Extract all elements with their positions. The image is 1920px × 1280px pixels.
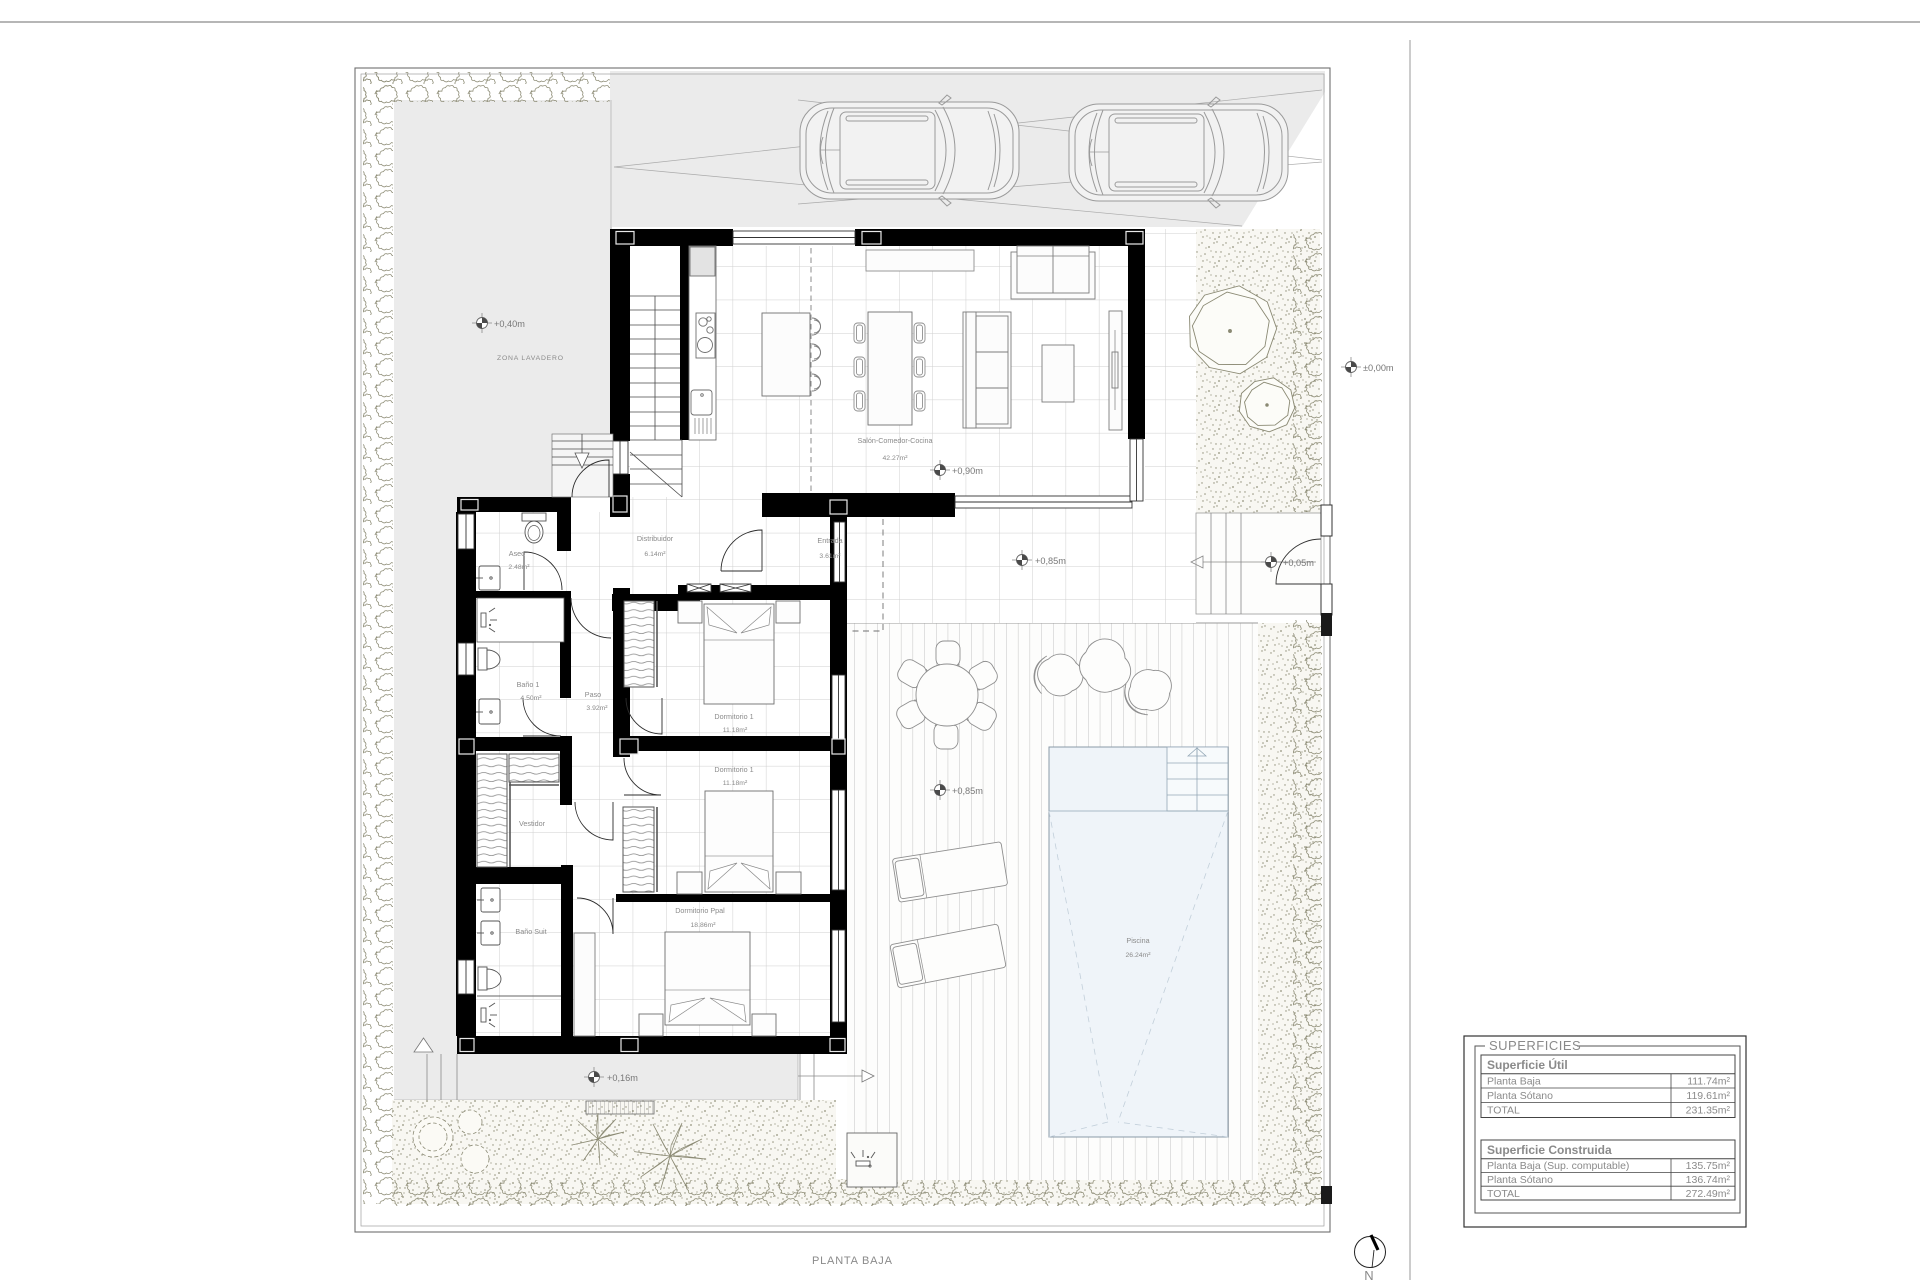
svg-text:231.35m²: 231.35m² [1686,1105,1731,1117]
svg-text:11.18m²: 11.18m² [723,727,748,734]
svg-text:Distribuidor: Distribuidor [637,534,674,543]
svg-text:Superficie Construida: Superficie Construida [1487,1143,1612,1157]
svg-text:111.74m²: 111.74m² [1687,1076,1730,1088]
svg-text:Dormitorio Ppal: Dormitorio Ppal [675,906,725,915]
svg-text:272.49m²: 272.49m² [1686,1188,1731,1200]
svg-text:11.18m²: 11.18m² [723,780,748,787]
svg-text:+0,40m: +0,40m [494,319,525,329]
svg-text:N: N [1364,1268,1373,1280]
svg-text:119.61m²: 119.61m² [1686,1090,1730,1102]
svg-text:26.24m²: 26.24m² [1126,952,1152,959]
svg-text:Superficie Útil: Superficie Útil [1487,1057,1568,1072]
svg-text:Paso: Paso [585,690,601,699]
svg-text:+0,85m: +0,85m [1035,556,1066,566]
svg-text:+0,90m: +0,90m [952,466,983,476]
svg-text:+0,05m: +0,05m [1283,558,1314,568]
svg-text:18.86m²: 18.86m² [691,922,717,929]
svg-text:ZONA LAVADERO: ZONA LAVADERO [497,355,564,362]
svg-text:Dormitorio 1: Dormitorio 1 [714,765,753,774]
svg-text:Vestidor: Vestidor [519,819,546,828]
svg-text:Entrada: Entrada [817,536,842,545]
svg-text:Planta Baja: Planta Baja [1487,1076,1541,1088]
svg-text:2.48m²: 2.48m² [508,564,530,571]
svg-text:Planta Sótano: Planta Sótano [1487,1090,1553,1102]
svg-text:Salón-Comedor-Cocina: Salón-Comedor-Cocina [857,436,932,445]
svg-text:Aseo: Aseo [509,549,525,558]
svg-text:Baño Suit: Baño Suit [515,927,546,936]
svg-text:Baño 1: Baño 1 [517,680,540,689]
svg-text:3.61m²: 3.61m² [819,553,841,560]
svg-text:136.74m²: 136.74m² [1686,1174,1731,1186]
svg-text:6.14m²: 6.14m² [644,551,666,558]
svg-text:Dormitorio 1: Dormitorio 1 [714,712,753,721]
svg-text:±0,00m: ±0,00m [1363,363,1394,373]
svg-text:Piscina: Piscina [1126,936,1149,945]
svg-text:SUPERFICIES: SUPERFICIES [1489,1038,1581,1053]
svg-text:135.75m²: 135.75m² [1686,1160,1731,1172]
svg-text:Planta Baja (Sup. computable): Planta Baja (Sup. computable) [1487,1160,1629,1172]
svg-text:Planta Sótano: Planta Sótano [1487,1174,1553,1186]
svg-text:+0,85m: +0,85m [952,786,983,796]
svg-text:4.50m²: 4.50m² [520,695,542,702]
svg-text:PLANTA BAJA: PLANTA BAJA [812,1255,893,1267]
svg-text:42.27m²: 42.27m² [883,455,909,462]
svg-text:TOTAL: TOTAL [1487,1105,1520,1117]
svg-text:3.92m²: 3.92m² [586,705,608,712]
svg-text:+0,16m: +0,16m [607,1073,638,1083]
svg-text:TOTAL: TOTAL [1487,1188,1520,1200]
